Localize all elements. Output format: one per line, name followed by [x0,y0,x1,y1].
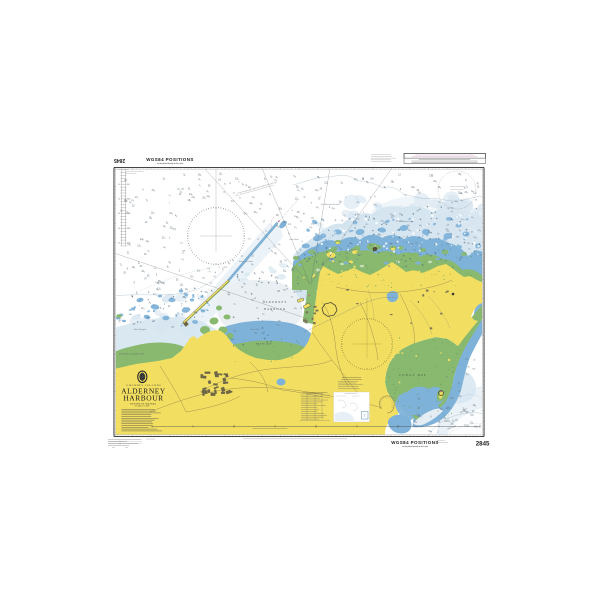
svg-text:can be plotted directly on thi: can be plotted directly on this chart [157,162,184,165]
svg-text:1500: 1500 [127,213,131,215]
svg-text:20: 20 [118,199,120,201]
svg-text:2845: 2845 [476,441,490,448]
svg-text:Outer Fourquie: Outer Fourquie [134,328,147,331]
svg-text:Braye Rock: Braye Rock [250,329,259,331]
svg-text:LONGY BAY: LONGY BAY [398,373,426,377]
svg-text:HARBOUR: HARBOUR [123,394,163,403]
svg-text:2500: 2500 [127,243,131,245]
svg-text:30: 30 [118,213,120,215]
svg-text:1000: 1000 [127,199,131,201]
svg-text:can be plotted directly on thi: can be plotted directly on this chart [402,445,429,448]
svg-text:50: 50 [118,243,120,245]
svg-text:WGS84 POSITIONS: WGS84 POSITIONS [391,440,439,445]
svg-text:500: 500 [127,184,130,186]
svg-text:Les Homeaux Florains: Les Homeaux Florains [320,204,340,206]
svg-text:SCALE 1:5 000: SCALE 1:5 000 [135,405,150,408]
svg-text:T: T [364,414,366,418]
svg-text:HARBOUR: HARBOUR [263,307,286,311]
svg-text:WGS84 POSITIONS: WGS84 POSITIONS [146,157,194,162]
svg-text:40: 40 [118,228,120,230]
svg-text:PLATTE SALINE BAY: PLATTE SALINE BAY [118,353,145,356]
svg-text:Boues des Kaines: Boues des Kaines [239,261,253,263]
svg-text:10: 10 [118,184,120,186]
svg-text:ALDERNEY: ALDERNEY [262,300,287,304]
svg-text:2000: 2000 [127,228,131,230]
svg-text:BRAYE BAY: BRAYE BAY [256,343,273,346]
svg-text:2845: 2845 [114,157,125,163]
svg-text:Inner Road: Inner Road [288,239,298,241]
